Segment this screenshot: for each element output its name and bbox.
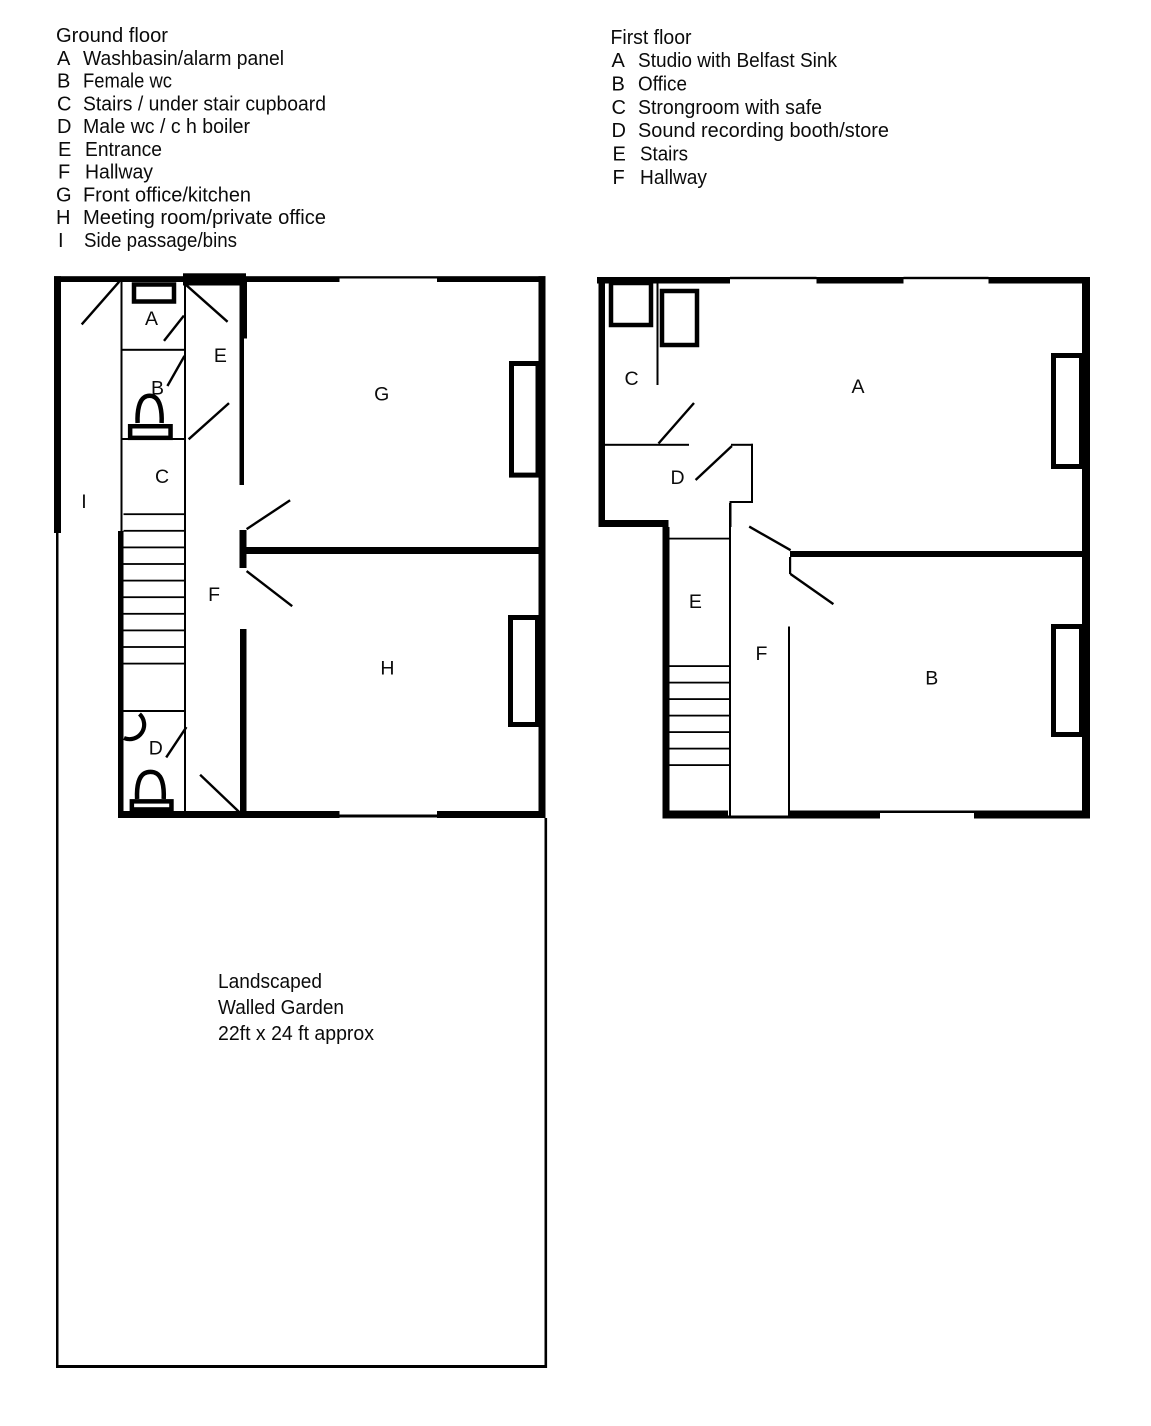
svg-text:F: F	[58, 162, 70, 184]
svg-text:F: F	[208, 584, 220, 606]
svg-text:D: D	[612, 120, 626, 142]
svg-text:C: C	[624, 368, 638, 390]
svg-text:G: G	[374, 383, 389, 405]
svg-text:Strongroom with safe: Strongroom with safe	[638, 97, 822, 119]
svg-text:Male wc / c h boiler: Male wc / c h boiler	[83, 116, 250, 138]
svg-text:E: E	[613, 144, 626, 166]
svg-text:B: B	[151, 378, 164, 400]
svg-text:A: A	[145, 308, 158, 330]
svg-text:D: D	[57, 116, 71, 138]
svg-text:E: E	[214, 345, 227, 367]
svg-text:C: C	[155, 466, 169, 488]
svg-text:E: E	[58, 139, 71, 161]
svg-text:F: F	[756, 643, 768, 665]
svg-text:Walled Garden: Walled Garden	[218, 997, 344, 1019]
svg-text:Stairs: Stairs	[640, 144, 688, 166]
svg-text:Female wc: Female wc	[83, 71, 172, 93]
svg-text:Office: Office	[638, 74, 687, 96]
svg-text:Hallway: Hallway	[85, 162, 153, 184]
svg-text:Entrance: Entrance	[85, 139, 162, 161]
svg-text:C: C	[57, 94, 71, 116]
svg-text:H: H	[56, 207, 70, 229]
svg-text:Washbasin/alarm panel: Washbasin/alarm panel	[83, 48, 284, 70]
svg-text:G: G	[56, 184, 72, 206]
svg-text:Studio with Belfast Sink: Studio with Belfast Sink	[638, 50, 838, 72]
svg-text:22ft x 24 ft approx: 22ft x 24 ft approx	[218, 1023, 374, 1045]
svg-text:Meeting room/private office: Meeting room/private office	[83, 207, 326, 229]
svg-text:B: B	[925, 667, 938, 689]
svg-text:Sound recording booth/store: Sound recording booth/store	[638, 120, 889, 142]
svg-text:F: F	[613, 167, 625, 189]
svg-text:A: A	[851, 376, 864, 398]
svg-text:D: D	[149, 738, 163, 760]
svg-text:First floor: First floor	[611, 27, 692, 49]
svg-text:D: D	[670, 467, 684, 489]
svg-text:Side passage/bins: Side passage/bins	[84, 230, 237, 252]
svg-text:A: A	[612, 50, 626, 72]
svg-text:I: I	[58, 230, 64, 252]
svg-text:Front office/kitchen: Front office/kitchen	[83, 184, 251, 206]
svg-text:A: A	[57, 48, 71, 70]
svg-text:E: E	[689, 591, 702, 613]
svg-text:H: H	[380, 658, 394, 680]
svg-text:B: B	[57, 71, 70, 93]
svg-text:Ground floor: Ground floor	[56, 25, 168, 47]
svg-text:C: C	[612, 97, 626, 119]
svg-text:Landscaped: Landscaped	[218, 971, 322, 993]
svg-text:I: I	[81, 491, 86, 513]
svg-text:B: B	[612, 74, 625, 96]
svg-text:Hallway: Hallway	[640, 167, 707, 189]
svg-text:Stairs / under stair cupboard: Stairs / under stair cupboard	[83, 94, 326, 116]
